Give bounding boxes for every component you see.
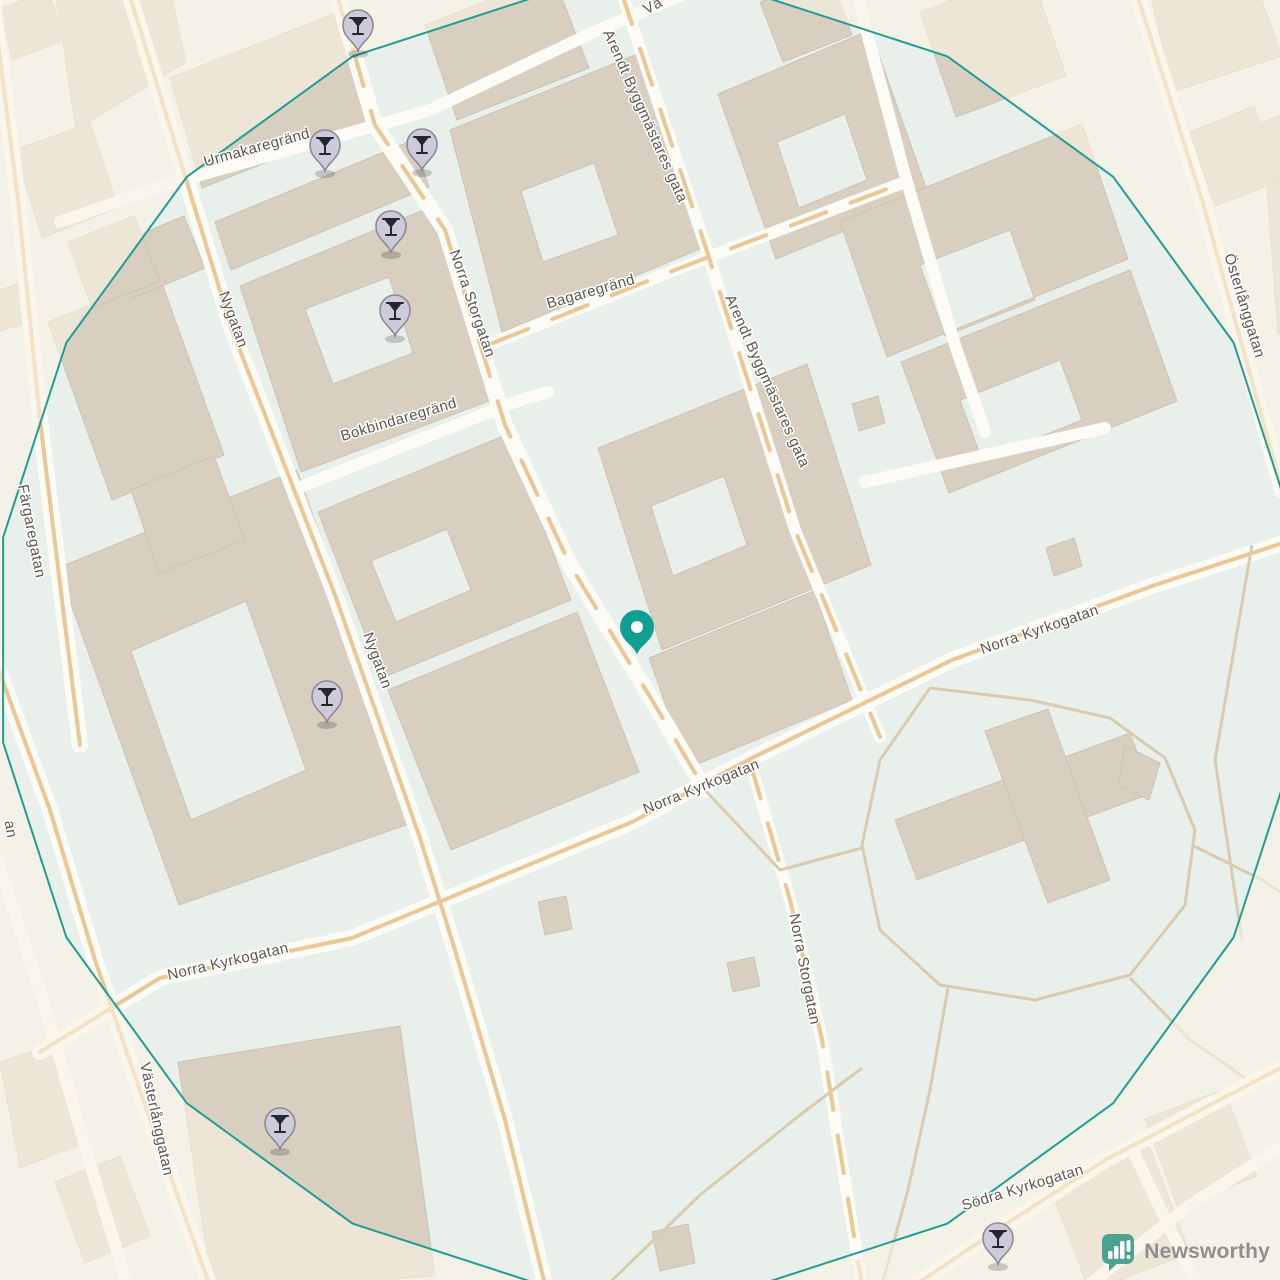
building [727, 957, 760, 992]
building [652, 1224, 695, 1271]
logo-text: Newsworthy [1144, 1240, 1270, 1264]
map-view: UrmakaregrändNorra StorgatanBagaregrändB… [0, 0, 1280, 1280]
map-canvas[interactable]: UrmakaregrändNorra StorgatanBagaregrändB… [0, 0, 1280, 1280]
newsworthy-branding: Newsworthy [1100, 1232, 1270, 1272]
street-label: an [1, 819, 21, 839]
newsworthy-logo-icon [1100, 1232, 1136, 1272]
pin-hole [631, 621, 643, 633]
